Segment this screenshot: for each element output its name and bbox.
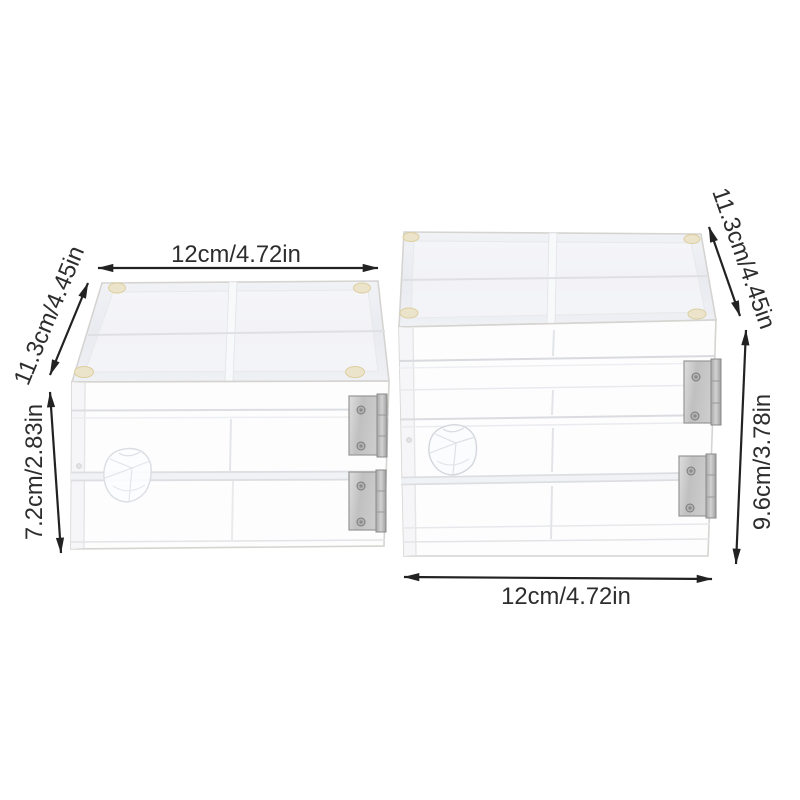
svg-text:12cm/4.72in: 12cm/4.72in <box>171 241 301 268</box>
svg-text:12cm/4.72in: 12cm/4.72in <box>501 583 631 610</box>
svg-text:7.2cm/2.83in: 7.2cm/2.83in <box>21 404 48 540</box>
svg-text:9.6cm/3.78in: 9.6cm/3.78in <box>749 394 776 530</box>
